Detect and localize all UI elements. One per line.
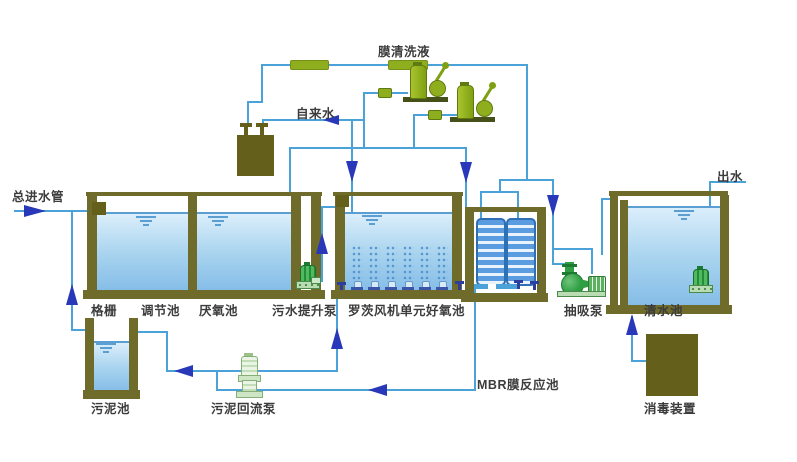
- sludge-tank-right-wall: [129, 318, 138, 392]
- aeration-bubbles: [420, 246, 431, 283]
- pipe-cleaning-left-v: [261, 64, 263, 103]
- mbr-floor-pipe-gap: [488, 284, 496, 289]
- tank1-mid-wall: [188, 196, 197, 291]
- pipe-supernatant-return: [71, 210, 73, 331]
- diffuser-base: [385, 287, 397, 290]
- aerobic-right-wall: [452, 196, 462, 291]
- label-tap-water: 自来水: [296, 103, 335, 122]
- pipe-mbr-drain: [474, 288, 476, 391]
- flow-arrow-up-lift-pump: [316, 233, 328, 254]
- aerobic-left-wall: [335, 196, 345, 291]
- roots-blower-1: [403, 62, 448, 102]
- pipe-membrane-step: [500, 179, 554, 181]
- tank1-bottom: [83, 290, 325, 299]
- suction-pump: [550, 244, 606, 296]
- flow-arrow-down-aerobic-feed: [346, 161, 358, 182]
- membrane-module: [506, 218, 536, 286]
- roots-blower-2: [450, 82, 495, 122]
- pump-spout: [311, 277, 321, 284]
- flow-arrow-left-to-sludge: [174, 365, 193, 377]
- pipe-blower2-drop: [413, 114, 415, 149]
- pipe-membrane-manifold: [480, 191, 519, 193]
- pipe-cleaning-tank-h: [247, 101, 263, 103]
- waterline-mark: [208, 216, 228, 218]
- sludge-tank-left-wall: [85, 318, 94, 392]
- blower-motor: [429, 80, 446, 97]
- anaerobic-tank-water: [197, 212, 291, 292]
- diffuser-base: [402, 287, 414, 290]
- aeration-bubbles: [369, 246, 380, 283]
- valve: [378, 88, 392, 98]
- blower-cap: [460, 82, 469, 86]
- blower-knob: [489, 82, 496, 89]
- mbr-left-wall: [465, 207, 474, 294]
- aerobic-top-edge: [333, 192, 463, 196]
- valve: [428, 110, 442, 120]
- flow-arrow-down-mbr-air: [460, 162, 472, 183]
- pump-base: [557, 291, 606, 297]
- pump-body-upper: [241, 356, 258, 377]
- aeration-bubbles: [403, 246, 414, 283]
- waterline-mark: [136, 216, 156, 218]
- label-anaerobic-tank: 厌氧池: [199, 300, 238, 319]
- tank1-top-edge: [86, 192, 322, 196]
- waterline-mark: [96, 343, 116, 345]
- membrane-module: [476, 218, 506, 286]
- aeration-bubbles: [352, 246, 363, 283]
- clear-tank-inner-wall: [620, 200, 628, 305]
- mbr-rim: [473, 207, 538, 212]
- pipe-sludge-feed-v: [166, 331, 168, 372]
- aerobic-bottom: [331, 290, 466, 299]
- clear-tank-top-edge: [609, 191, 728, 196]
- label-suction-pump: 抽吸泵: [564, 300, 603, 319]
- pipe-cleaning-tank-v: [247, 101, 249, 123]
- diffuser-base: [436, 287, 448, 290]
- label-lift-pump: 污水提升泵: [272, 300, 337, 319]
- label-roots-aerobic: 罗茨风机单元好氧池: [348, 300, 465, 319]
- blower-motor: [476, 100, 493, 117]
- aeration-bubbles: [386, 246, 397, 283]
- aerobic-inlet-fitting: [336, 195, 349, 207]
- disinfection-box: [646, 334, 698, 396]
- pipe-membrane-riser2: [517, 191, 519, 220]
- cleaning-tank-fitting: [260, 127, 264, 136]
- clear-tank-left-wall: [610, 195, 618, 305]
- cleaning-tank-fitting: [244, 127, 248, 136]
- blower-tank: [457, 85, 474, 119]
- floor-fitting: [530, 281, 539, 284]
- bar-screen-block: [92, 202, 106, 215]
- diffuser-base: [419, 287, 431, 290]
- label-membrane-cleaning: 膜清洗液: [378, 41, 430, 60]
- pipe-air-manifold: [289, 147, 467, 149]
- pipe-air-manifold-left-drop: [289, 147, 291, 194]
- clear-tank-pump: [689, 266, 711, 292]
- cleaning-solution-tank: [237, 135, 274, 176]
- pump-base: [689, 285, 713, 293]
- label-sludge-return-pump: 污泥回流泵: [211, 398, 276, 417]
- label-bar-screen: 格栅: [91, 300, 117, 319]
- blower-cap: [413, 62, 422, 66]
- aeration-bubbles: [437, 246, 448, 283]
- wastewater-treatment-process-diagram: 总进水管 膜清洗液 自来水 出水 格栅 调节池 厌氧池 污水提升泵 罗茨风机单元…: [0, 0, 797, 462]
- waterline-mark: [674, 210, 694, 212]
- label-clear-water-tank: 清水池: [644, 300, 683, 319]
- pipe-return-riser: [216, 370, 218, 391]
- flow-arrow-down-suction: [547, 195, 559, 216]
- label-disinfection: 消毒装置: [644, 398, 696, 417]
- waterline-mark: [362, 215, 382, 217]
- label-mbr-tank: MBR膜反应池: [477, 374, 559, 393]
- label-regulating-tank: 调节池: [141, 300, 180, 319]
- flow-arrow-right-inlet: [24, 205, 46, 217]
- mbr-floor-pipe: [474, 284, 519, 289]
- label-outlet: 出水: [717, 166, 743, 185]
- flow-arrow-up-aerobic-return: [331, 328, 343, 349]
- sewage-lift-pump: [296, 262, 318, 288]
- label-main-inlet: 总进水管: [12, 186, 64, 205]
- pump-base: [236, 391, 263, 398]
- pipe-blower1-drop: [363, 92, 365, 149]
- diffuser-base: [368, 287, 380, 290]
- flow-arrow-left-return: [368, 384, 387, 396]
- sludge-return-pump: [233, 353, 263, 397]
- pump-flange: [562, 264, 577, 267]
- mbr-bottom: [461, 293, 548, 302]
- pipe-segment-green: [290, 60, 329, 70]
- flow-arrow-up-disinfect: [626, 314, 638, 335]
- pipe-cleaning-main-v: [526, 64, 528, 181]
- floor-fitting: [455, 281, 464, 284]
- flow-arrow-up-supernatant: [66, 284, 78, 305]
- pipe-sludge-feed-h: [137, 331, 168, 333]
- label-sludge-tank: 污泥池: [91, 398, 130, 417]
- pipe-membrane-riser1: [480, 191, 482, 220]
- floor-fitting: [337, 282, 346, 285]
- blower-tank: [410, 65, 427, 99]
- diffuser-base: [351, 287, 363, 290]
- floor-fitting: [514, 280, 523, 283]
- clear-tank-right-wall: [720, 195, 729, 305]
- blower-knob: [442, 62, 449, 69]
